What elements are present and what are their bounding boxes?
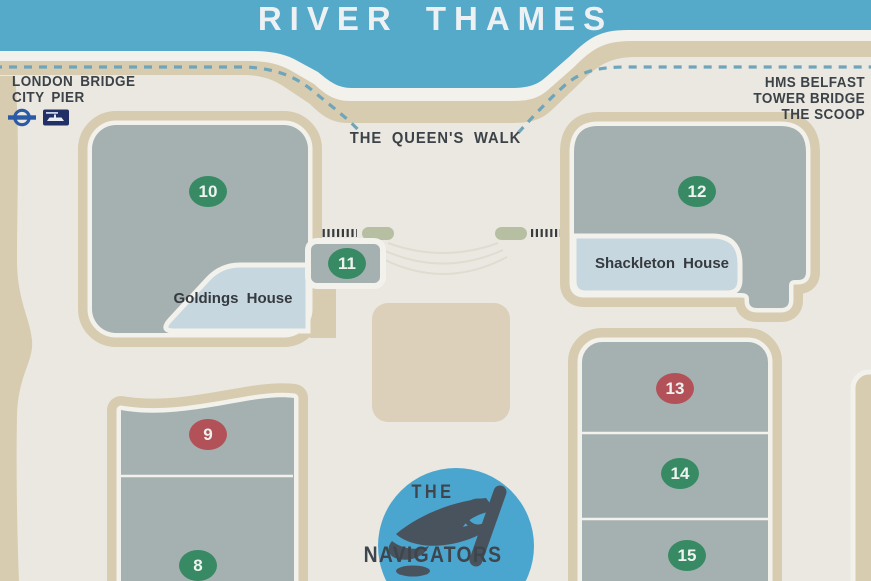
shackleton-house-label: Shackleton House [578, 256, 746, 273]
site-name-line1: THE [347, 482, 519, 503]
marker-12: 12 [678, 176, 716, 207]
queens-walk-label: THE QUEEN'S WALK [22, 130, 849, 147]
marker-15: 15 [668, 540, 706, 571]
central-lawn [372, 303, 510, 422]
pier-label-line2: CITY PIER [12, 90, 85, 106]
london-bridge-city-pier-label: LONDON BRIDGECITY PIER [12, 74, 135, 106]
goldings-house-label: Goldings House [150, 291, 316, 308]
tfl-river-roundel-icon [7, 107, 37, 128]
site-name-line2: NAVIGATORS [347, 542, 519, 567]
dest-the-scoop: THE SCOOP [781, 107, 865, 123]
hedge-right [495, 227, 527, 240]
marker-14: 14 [661, 458, 699, 489]
right-path-edge [853, 372, 871, 581]
pier-label-line1: LONDON BRIDGE [12, 74, 135, 90]
marker-11: 11 [328, 248, 366, 279]
map-sign: RIVER THAMES LONDON BRIDGECITY PIER HMS … [0, 0, 871, 581]
dest-hms-belfast: HMS BELFAST [765, 75, 865, 91]
river-bus-icon [43, 109, 69, 126]
destinations-label: HMS BELFASTTOWER BRIDGETHE SCOOP [753, 75, 865, 124]
marker-13: 13 [656, 373, 694, 404]
pier-transport-icons [7, 107, 69, 128]
dest-tower-bridge: TOWER BRIDGE [753, 91, 865, 107]
site-name-label: THE NAVIGATORS [347, 446, 519, 581]
marker-9: 9 [189, 419, 227, 450]
marker-10: 10 [189, 176, 227, 207]
marker-8: 8 [179, 550, 217, 581]
river-thames-label: RIVER THAMES [0, 1, 871, 38]
building-12-block [574, 126, 806, 308]
